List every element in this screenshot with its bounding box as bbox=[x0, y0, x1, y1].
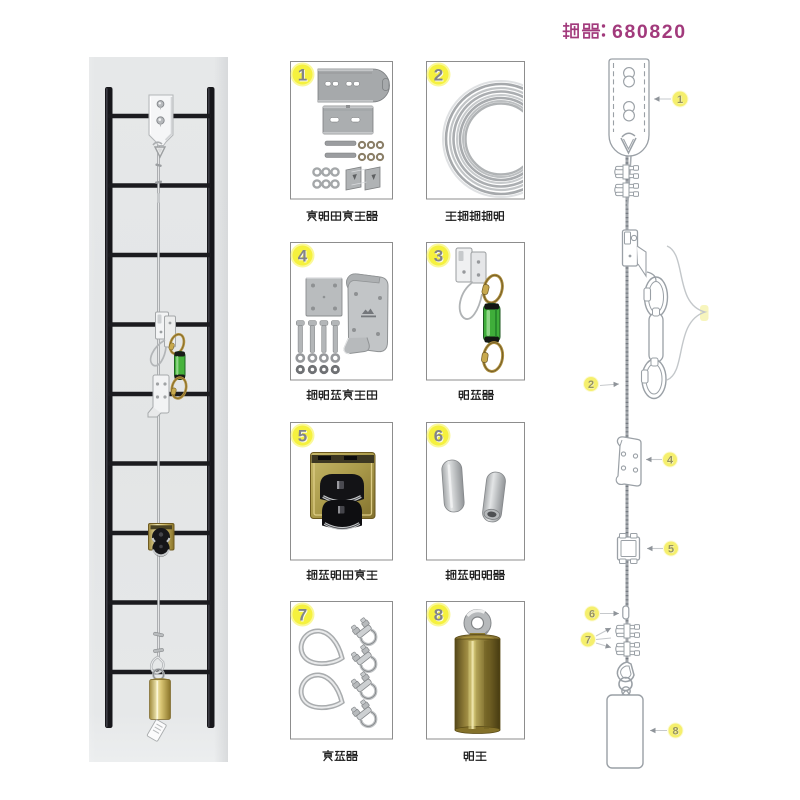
svg-text:2: 2 bbox=[434, 66, 443, 85]
svg-text:6: 6 bbox=[589, 608, 595, 620]
svg-text:4: 4 bbox=[298, 246, 308, 265]
svg-text:7: 7 bbox=[585, 634, 591, 646]
svg-text:5: 5 bbox=[298, 426, 307, 445]
svg-text:4: 4 bbox=[667, 454, 674, 466]
svg-text:8: 8 bbox=[434, 606, 443, 625]
svg-text:7: 7 bbox=[298, 606, 307, 625]
svg-text:1: 1 bbox=[677, 94, 683, 106]
svg-text:5: 5 bbox=[668, 543, 674, 555]
svg-text:680820: 680820 bbox=[612, 21, 687, 43]
svg-text:2: 2 bbox=[588, 379, 594, 391]
svg-text:8: 8 bbox=[672, 725, 678, 737]
svg-text:1: 1 bbox=[298, 66, 307, 85]
svg-text:6: 6 bbox=[434, 426, 443, 445]
svg-text:3: 3 bbox=[434, 246, 443, 265]
